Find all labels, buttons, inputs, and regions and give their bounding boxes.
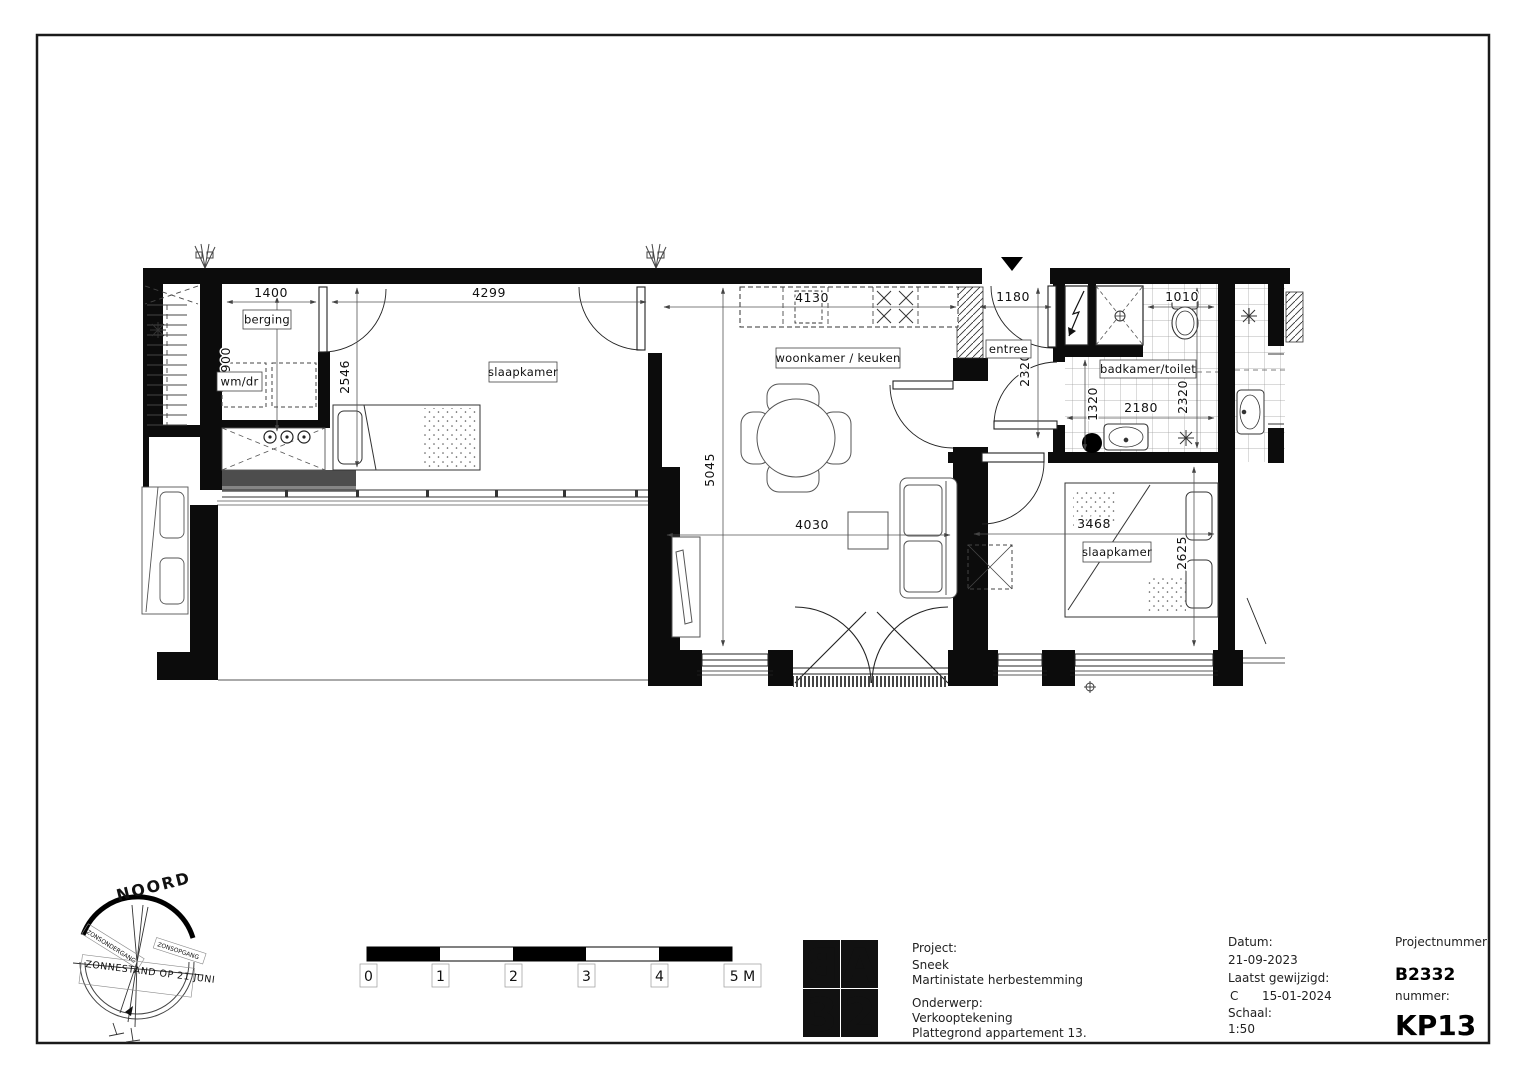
entrance-marker-icon [1001,257,1023,271]
compass-rose: NOORD ZONSONDERGANG ZONSOPGANG ZONNESTAN… [73,868,216,1042]
svg-text:0: 0 [364,969,373,985]
schaal-value: 1:50 [1228,1022,1255,1036]
project-block: Project: Sneek Martinistate herbestemmin… [912,941,1087,1040]
room-label-berging: berging [243,310,291,329]
bed-single [333,405,480,470]
logo-letter-2: 2 [843,988,875,1042]
neighbour-sink-icon [1237,390,1264,434]
vent-icon [195,244,215,268]
dim-slaapkamer2-diepte: 2625 [1174,536,1189,570]
logo-letter-3: 3 [805,988,837,1042]
datum-value: 21-09-2023 [1228,953,1298,967]
svg-text:badkamer/toilet: badkamer/toilet [1100,362,1196,376]
svg-text:woonkamer / keuken: woonkamer / keuken [775,351,900,365]
shaft-box [222,428,325,470]
compass-sun-position-label: ZONNESTAND OP 21 JUNI [79,955,216,1000]
light-point-icon [1241,308,1257,324]
onderwerp-label: Onderwerp: [912,996,983,1010]
dim-keuken-breedte: 4130 [795,290,829,305]
dining-table [757,399,835,477]
facade-band-bedroom1 [217,470,653,505]
ba32-logo: B A 3 2 [803,938,878,1042]
compass-sunrise-label: ZONSOPGANG [153,937,206,964]
svg-text:entree: entree [989,342,1028,356]
dim-woonkamer-breedte: 4030 [795,517,829,532]
toilet-icon [1172,299,1198,339]
tv-cabinet [672,537,700,637]
drain-marker-icon [1084,681,1096,693]
dim-badkamer-hoogte: 2320 [1175,380,1190,414]
onderwerp-line1: Verkooptekening [912,1011,1013,1025]
room-label-badkamer: badkamer/toilet [1100,360,1196,378]
sofa [900,478,957,598]
svg-text:1: 1 [436,969,445,985]
dim-toilet-breedte: 1010 [1165,289,1199,304]
project-name: Martinistate herbestemming [912,973,1083,987]
neighbour-bed [142,487,188,614]
vent-icon [646,244,666,268]
dim-slaapkamer1-diepte: 2546 [337,360,352,394]
gewijzigd-datum: 15-01-2024 [1262,989,1332,1003]
dim-woonkamer-diepte: 5045 [702,453,717,487]
drawing-sheet: 1400 4299 1900 2546 4130 5045 4030 1180 … [0,0,1527,1080]
room-label-wmdr: wm/dr [217,372,262,391]
title-block: Datum: 21-09-2023 Laatst gewijzigd: C 15… [1228,935,1491,1042]
scale-bar: 0 1 2 3 4 5 M [360,947,761,987]
bathroom-sink-icon [1104,424,1148,450]
svg-text:slaapkamer: slaapkamer [1082,545,1152,559]
logo-letter-a: A [842,938,878,992]
coffee-table [848,512,888,549]
french-doors [793,607,948,687]
light-point-icon [1178,430,1194,446]
gewijzigd-label: Laatst gewijzigd: [1228,971,1329,985]
revisie-letter: C [1230,989,1238,1003]
dim-badkamer-diepte: 1320 [1085,387,1100,421]
room-label-entree: entree [986,340,1031,358]
dim-slaapkamer2-breedte: 3468 [1077,516,1111,531]
scale-bar-labels: 0 1 2 3 4 5 M [360,964,761,987]
room-label-woonkamer: woonkamer / keuken [775,348,900,368]
dining-set [741,384,851,492]
nummer-label: nummer: [1395,989,1450,1003]
logo-letter-b: B [804,938,839,992]
floor-plan: 1400 4299 1900 2546 4130 5045 4030 1180 … [142,244,1303,693]
projectnummer-label: Projectnummer: [1395,935,1491,949]
light-point-icon [150,322,166,338]
svg-text:2: 2 [509,969,518,985]
room-label-slaapkamer1: slaapkamer [488,362,558,382]
shower [1096,286,1143,345]
onderwerp-line2: Plattegrond appartement 13. [912,1026,1087,1040]
dim-badkamer-breedte: 2180 [1124,400,1158,415]
svg-text:5 M: 5 M [730,969,755,985]
dim-slaapkamer1-breedte: 4299 [472,285,506,300]
room-label-slaapkamer2: slaapkamer [1082,542,1152,562]
project-city: Sneek [912,958,949,972]
dim-berging-breedte: 1400 [254,285,288,300]
project-label: Project: [912,941,957,955]
schaal-label: Schaal: [1228,1006,1272,1020]
svg-text:wm/dr: wm/dr [220,375,258,389]
projectnummer-value: B2332 [1395,965,1455,985]
datum-label: Datum: [1228,935,1273,949]
svg-text:4: 4 [655,969,664,985]
dim-entree-breedte: 1180 [996,289,1030,304]
svg-text:slaapkamer: slaapkamer [488,365,558,379]
svg-text:berging: berging [244,313,290,327]
page-border [37,35,1489,1043]
svg-text:3: 3 [582,969,591,985]
nummer-value: KP13 [1395,1009,1476,1042]
meter-cupboard [1065,286,1088,345]
